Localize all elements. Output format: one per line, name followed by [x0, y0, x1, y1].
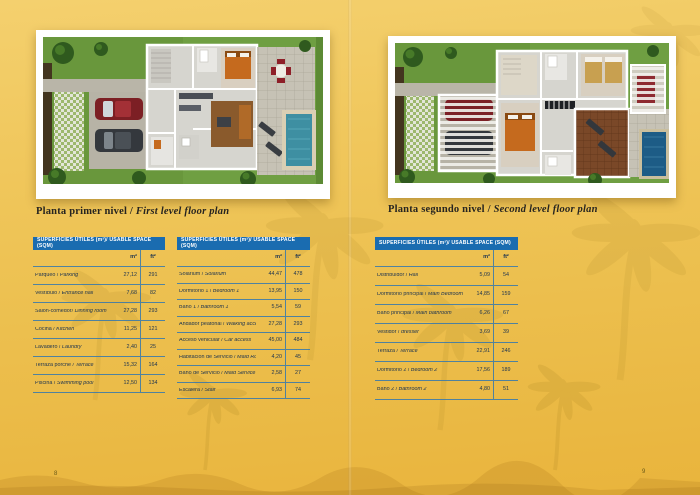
area-m2: 6,26 [464, 305, 493, 323]
room-label: Dormitorio principal / Main Bedroom [375, 292, 464, 297]
room-label: Solarium / Solarium [177, 272, 256, 277]
table-row: Dormitorio 1 / Bedroom 113,95150 [177, 284, 310, 301]
area-m2: 44,47 [256, 267, 285, 283]
title-separator: / [127, 206, 136, 217]
area-m2: 5,09 [464, 267, 493, 285]
area-m2: 14,85 [464, 286, 493, 304]
table-column-headers: m² ft² [33, 250, 165, 267]
table-row: Habitación de Servicio / Maid Room4,2045 [177, 350, 310, 367]
page-number-left: 8 [54, 471, 57, 477]
table-row: Lavadero / Laundry2,4025 [33, 339, 165, 357]
area-ft2: 293 [285, 317, 310, 333]
area-m2: 45,00 [256, 333, 285, 349]
area-ft2: 246 [493, 343, 518, 361]
col-ft2: ft² [285, 250, 310, 266]
table-row: Terraza porche / Terrace15,32164 [33, 357, 165, 375]
room-label: Baño de Servicio / Maid Service [177, 371, 256, 376]
area-m2: 12,50 [111, 375, 140, 392]
room-label: Distribuidor / Hall [375, 273, 464, 278]
area-ft2: 121 [140, 321, 165, 338]
room-label: Baño 1 / Bathroom 1 [177, 305, 256, 310]
area-ft2: 134 [140, 375, 165, 392]
second-level-floor-plan-card [388, 36, 676, 198]
area-m2: 2,58 [256, 366, 285, 382]
area-m2: 7,68 [111, 285, 140, 302]
area-ft2: 51 [493, 381, 518, 399]
table-column-headers: m² ft² [375, 250, 518, 267]
title-spanish: Planta segundo nivel [388, 204, 485, 215]
area-m2: 13,95 [256, 284, 285, 300]
room-label: Vestíbulo / Entrance hall [33, 291, 111, 296]
table-row: Solarium / Solarium44,47478 [177, 267, 310, 284]
first-level-title: Planta primer nivel / First level floor … [36, 206, 229, 217]
room-label: Terraza porche / Terrace [33, 363, 111, 368]
area-m2: 22,91 [464, 343, 493, 361]
second-level-floor-plan-render [395, 43, 669, 183]
room-label: Baño 2 / Bathroom 2 [375, 387, 464, 392]
area-ft2: 39 [493, 324, 518, 342]
page-fold-divider [348, 0, 352, 495]
room-label: Terraza / Terrace [375, 349, 464, 354]
area-ft2: 25 [140, 339, 165, 356]
table-row: Baño de Servicio / Maid Service2,5827 [177, 366, 310, 383]
room-label: Habitación de Servicio / Maid Room [177, 355, 256, 360]
table-row: Dormitorio principal / Main Bedroom14,85… [375, 286, 518, 305]
table-row: Cocina / Kitchen11,25121 [33, 321, 165, 339]
table-row: Vestíbulo / Entrance hall7,6882 [33, 285, 165, 303]
first-level-areas-table-1: SUPERFICIES ÚTILES (m²)/ USABLE SPACE (S… [33, 237, 165, 393]
area-m2: 3,69 [464, 324, 493, 342]
room-label: Lavadero / Laundry [33, 345, 111, 350]
area-ft2: 484 [285, 333, 310, 349]
table-header: SUPERFICIES ÚTILES (m²)/ USABLE SPACE (S… [177, 237, 310, 250]
area-ft2: 54 [493, 267, 518, 285]
table-row: Salón-comedor/ Dinning room27,28293 [33, 303, 165, 321]
area-ft2: 189 [493, 362, 518, 380]
table-row: Piscina / Swimming pool12,50134 [33, 375, 165, 393]
col-ft2: ft² [493, 250, 518, 266]
table-row: Escalera / Stair6,9374 [177, 383, 310, 400]
table-row: Baño 2 / Bathroom 24,8051 [375, 381, 518, 400]
area-m2: 5,54 [256, 300, 285, 316]
room-label: Vestidor / dresser [375, 330, 464, 335]
room-label: Dormitorio 2 / Bedroom 2 [375, 368, 464, 373]
room-label: Parqueo / Parking [33, 273, 111, 278]
area-m2: 27,28 [256, 317, 285, 333]
area-ft2: 159 [493, 286, 518, 304]
table-row: Vestidor / dresser3,6939 [375, 324, 518, 343]
title-spanish: Planta primer nivel [36, 206, 127, 217]
area-m2: 27,28 [111, 303, 140, 320]
area-ft2: 82 [140, 285, 165, 302]
title-english: Second level floor plan [494, 204, 598, 215]
col-m2: m² [464, 250, 493, 266]
col-m2: m² [111, 250, 140, 266]
table-row: Distribuidor / Hall5,0954 [375, 267, 518, 286]
room-label: Baño principal / Main bathroom [375, 311, 464, 316]
room-label: Dormitorio 1 / Bedroom 1 [177, 289, 256, 294]
area-ft2: 67 [493, 305, 518, 323]
second-level-title: Planta segundo nivel / Second level floo… [388, 204, 598, 215]
area-m2: 2,40 [111, 339, 140, 356]
area-ft2: 27 [285, 366, 310, 382]
room-label: Andador peatonal / Walking access [177, 322, 256, 327]
area-m2: 6,93 [256, 383, 285, 399]
table-row: Baño 1 / Bathroom 15,5459 [177, 300, 310, 317]
area-ft2: 164 [140, 357, 165, 374]
area-m2: 17,56 [464, 362, 493, 380]
room-label: Cocina / Kitchen [33, 327, 111, 332]
area-m2: 27,12 [111, 267, 140, 284]
page-number-right: 9 [642, 469, 645, 475]
area-ft2: 59 [285, 300, 310, 316]
table-column-headers: m² ft² [177, 250, 310, 267]
room-label: Salón-comedor/ Dinning room [33, 309, 111, 314]
table-row: Acceso vehicular / Car access45,00484 [177, 333, 310, 350]
area-m2: 4,20 [256, 350, 285, 366]
title-english: First level floor plan [136, 206, 229, 217]
area-m2: 4,80 [464, 381, 493, 399]
table-header: SUPERFICIES ÚTILES (m²)/ USABLE SPACE (S… [375, 237, 518, 250]
second-level-areas-table: SUPERFICIES ÚTILES (m²)/ USABLE SPACE (S… [375, 237, 518, 400]
col-m2: m² [256, 250, 285, 266]
table-row: Terraza / Terrace22,91246 [375, 343, 518, 362]
area-ft2: 150 [285, 284, 310, 300]
area-m2: 15,32 [111, 357, 140, 374]
table-row: Dormitorio 2 / Bedroom 217,56189 [375, 362, 518, 381]
title-separator: / [485, 204, 494, 215]
table-header: SUPERFICIES ÚTILES (m²)/ USABLE SPACE (S… [33, 237, 165, 250]
area-ft2: 291 [140, 267, 165, 284]
area-ft2: 478 [285, 267, 310, 283]
area-ft2: 74 [285, 383, 310, 399]
table-row: Andador peatonal / Walking access27,2829… [177, 317, 310, 334]
first-level-areas-table-2: SUPERFICIES ÚTILES (m²)/ USABLE SPACE (S… [177, 237, 310, 399]
first-level-floor-plan-card [36, 30, 330, 199]
table-row: Parqueo / Parking27,12291 [33, 267, 165, 285]
first-level-floor-plan-render [43, 37, 323, 184]
room-label: Acceso vehicular / Car access [177, 338, 256, 343]
table-row: Baño principal / Main bathroom6,2667 [375, 305, 518, 324]
room-label: Escalera / Stair [177, 388, 256, 393]
area-m2: 11,25 [111, 321, 140, 338]
col-ft2: ft² [140, 250, 165, 266]
area-ft2: 293 [140, 303, 165, 320]
room-label: Piscina / Swimming pool [33, 381, 111, 386]
area-ft2: 45 [285, 350, 310, 366]
